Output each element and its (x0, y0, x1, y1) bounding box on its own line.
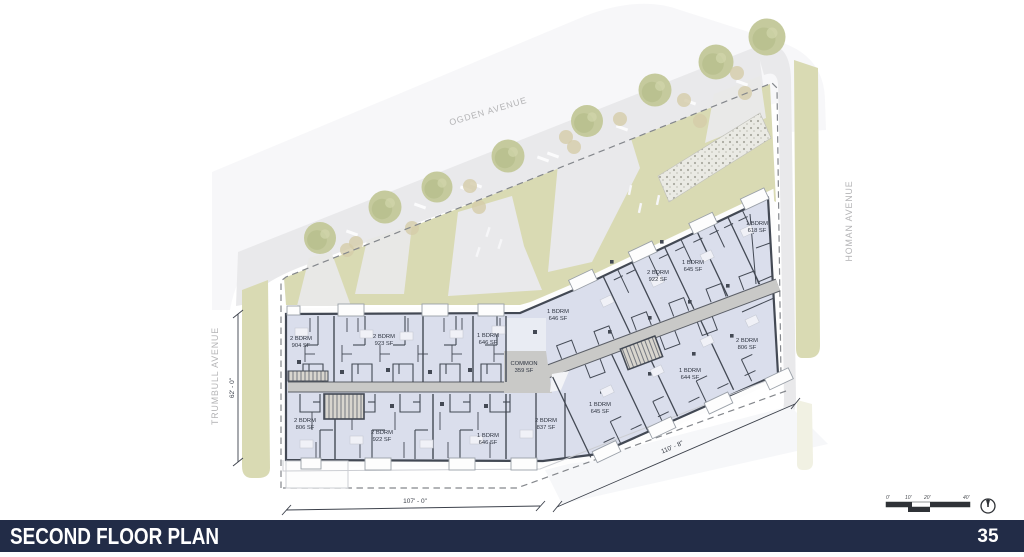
svg-text:35: 35 (977, 526, 999, 547)
svg-text:HOMAN AVENUE: HOMAN AVENUE (844, 180, 854, 261)
svg-text:646 SF: 646 SF (549, 316, 568, 322)
svg-text:806 SF: 806 SF (296, 425, 315, 431)
svg-text:2 BDRM: 2 BDRM (736, 338, 758, 344)
svg-text:SECOND FLOOR PLAN: SECOND FLOOR PLAN (10, 523, 219, 549)
svg-text:1 BDRM: 1 BDRM (547, 309, 569, 315)
svg-text:1 BDRM: 1 BDRM (746, 221, 768, 227)
svg-text:2 BDRM: 2 BDRM (290, 336, 312, 342)
svg-text:COMMON: COMMON (510, 361, 537, 367)
svg-text:646 SF: 646 SF (479, 440, 498, 446)
svg-text:2 BDRM: 2 BDRM (294, 418, 316, 424)
svg-text:1 BDRM: 1 BDRM (589, 402, 611, 408)
svg-text:1 BDRM: 1 BDRM (477, 433, 499, 439)
svg-text:923 SF: 923 SF (375, 341, 394, 347)
svg-text:2 BDRM: 2 BDRM (371, 430, 393, 436)
svg-text:359 SF: 359 SF (515, 368, 534, 374)
svg-text:62' - 0": 62' - 0" (229, 377, 236, 398)
svg-text:1 BDRM: 1 BDRM (679, 368, 701, 374)
svg-text:618 SF: 618 SF (748, 228, 767, 234)
svg-text:922 SF: 922 SF (373, 437, 392, 443)
svg-text:40': 40' (963, 495, 971, 501)
svg-text:10': 10' (905, 495, 913, 501)
svg-text:1 BDRM: 1 BDRM (682, 260, 704, 266)
svg-text:2 BDRM: 2 BDRM (647, 270, 669, 276)
svg-text:644 SF: 644 SF (681, 375, 700, 381)
svg-text:645 SF: 645 SF (591, 409, 610, 415)
svg-text:922 SF: 922 SF (649, 277, 668, 283)
svg-text:TRUMBULL AVENUE: TRUMBULL AVENUE (210, 327, 220, 425)
svg-text:904 SF: 904 SF (292, 343, 311, 349)
svg-text:107' - 0": 107' - 0" (403, 498, 427, 505)
svg-text:806 SF: 806 SF (738, 345, 757, 351)
svg-text:645 SF: 645 SF (684, 267, 703, 273)
svg-text:646 SF: 646 SF (479, 340, 498, 346)
svg-text:2 BDRM: 2 BDRM (373, 334, 395, 340)
svg-text:1 BDRM: 1 BDRM (477, 333, 499, 339)
svg-text:837 SF: 837 SF (537, 425, 556, 431)
svg-text:2 BDRM: 2 BDRM (535, 418, 557, 424)
svg-text:20': 20' (923, 495, 932, 501)
